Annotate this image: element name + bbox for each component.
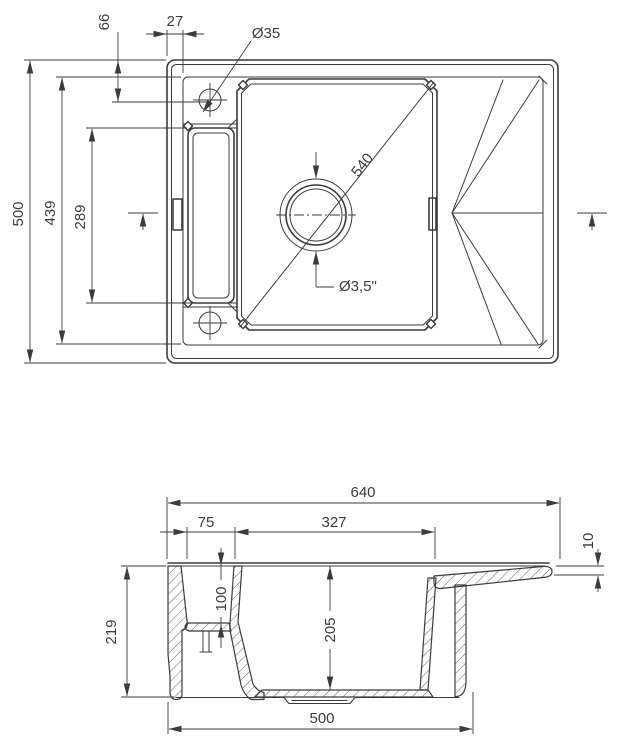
dim-inner-depth-label: 439 [42, 200, 59, 225]
bowl-bottom-section [255, 690, 433, 697]
section-profile [168, 563, 552, 704]
dim-tray-width: 75 [160, 514, 258, 559]
dim-recess-length: 289 [72, 128, 187, 303]
sink-body-outline [167, 60, 558, 363]
dim-overall-height: 219 [103, 566, 174, 697]
dim-bowl-depth-label: 205 [322, 617, 339, 642]
centerline-marks [128, 213, 607, 230]
dim-overall-depth-label: 500 [10, 201, 27, 226]
technical-drawing: 500 439 289 66 [0, 0, 618, 750]
drainer-slab-section [434, 566, 552, 588]
dim-base-width-label: 500 [309, 710, 334, 727]
dim-bowl-diagonal-label: 540 [348, 150, 377, 180]
dim-overall-width: 640 [167, 484, 560, 559]
tap-deck-bottom [183, 303, 237, 340]
drawing-svg: 500 439 289 66 [0, 0, 618, 750]
dim-recess-length-label: 289 [72, 204, 89, 229]
accessory-recess [184, 122, 235, 308]
dim-drain-label: Ø3,5" [339, 278, 377, 295]
dim-tray-depth-label: 100 [213, 586, 230, 611]
tap-deck-top [183, 83, 237, 128]
dim-tray-width-label: 75 [198, 514, 215, 531]
bowl-left-wall-section [230, 566, 264, 700]
right-wall-section [455, 585, 466, 697]
top-view: 500 439 289 66 [10, 13, 607, 363]
left-wall-section [168, 566, 187, 700]
dim-bowl-width: 327 [236, 514, 435, 559]
dim-inner-depth: 439 [42, 77, 181, 344]
dim-overall-height-label: 219 [103, 619, 120, 644]
bowl-right-wall-section [420, 578, 436, 690]
dim-bowl-depth: 205 [322, 566, 339, 690]
dim-tap-vertical-label: 66 [96, 14, 113, 31]
dim-bowl-width-label: 327 [321, 514, 346, 531]
dim-base-width: 500 [168, 692, 473, 734]
dim-edge-thickness: 10 [554, 533, 604, 592]
drainer-grooves [452, 76, 547, 348]
dim-drain: Ø3,5" [316, 152, 377, 295]
dim-edge-thickness-label: 10 [580, 533, 597, 550]
dim-bowl-diagonal: 540 [240, 82, 434, 327]
drain [276, 179, 356, 251]
mounting-clip [173, 199, 182, 230]
tray-bottom-section [185, 623, 231, 631]
dim-tap-vertical: 66 [96, 14, 211, 102]
dim-overall-width-label: 640 [350, 484, 375, 501]
dim-rim-width-label: 27 [167, 13, 184, 30]
section-view: 640 75 327 10 100 [103, 484, 604, 734]
dim-tap-hole-label: Ø35 [252, 25, 280, 42]
